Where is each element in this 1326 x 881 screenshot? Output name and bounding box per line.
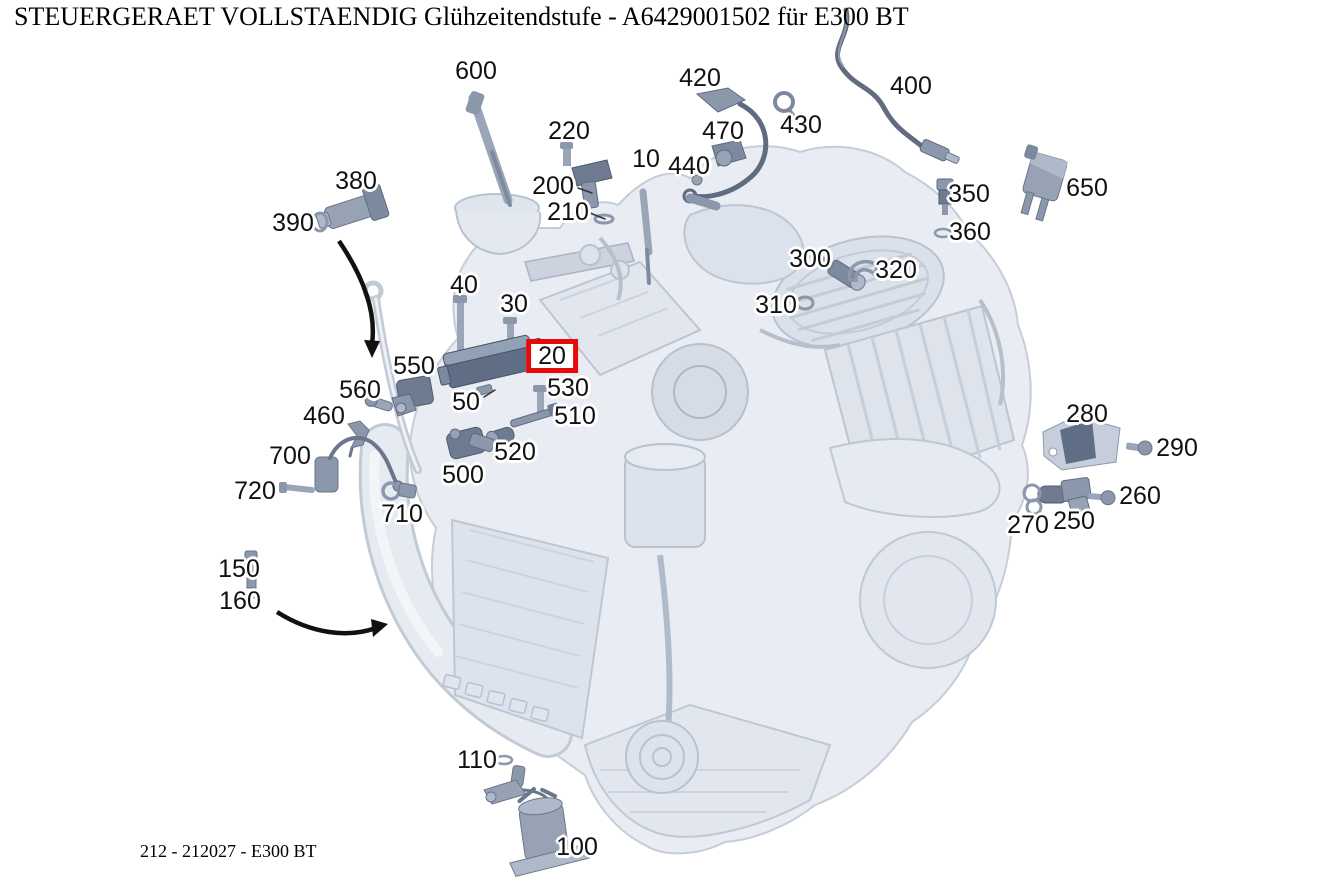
callout-20-highlighted[interactable]: 20 xyxy=(526,339,578,373)
callout-430[interactable]: 430 xyxy=(780,112,822,138)
callout-460[interactable]: 460 xyxy=(303,403,345,429)
callout-110[interactable]: 110 xyxy=(457,747,497,773)
callout-290[interactable]: 290 xyxy=(1156,435,1198,461)
callout-150[interactable]: 150 xyxy=(218,556,260,582)
callout-100[interactable]: 100 xyxy=(556,834,598,860)
callout-280[interactable]: 280 xyxy=(1066,401,1108,427)
page-title: STEUERGERAET VOLLSTAENDIG Glühzeitendstu… xyxy=(14,2,909,32)
callout-220[interactable]: 220 xyxy=(548,118,590,144)
callout-250[interactable]: 250 xyxy=(1053,508,1095,534)
callout-320[interactable]: 320 xyxy=(875,257,917,283)
callout-530[interactable]: 530 xyxy=(547,375,589,401)
callout-210[interactable]: 210 xyxy=(547,199,589,225)
callout-200[interactable]: 200 xyxy=(532,173,574,199)
callout-720[interactable]: 720 xyxy=(234,478,276,504)
callout-350[interactable]: 350 xyxy=(948,181,990,207)
callout-160[interactable]: 160 xyxy=(219,588,261,614)
callout-50[interactable]: 50 xyxy=(452,389,480,415)
callout-30[interactable]: 30 xyxy=(500,291,528,317)
callout-600[interactable]: 600 xyxy=(455,58,497,84)
callout-260[interactable]: 260 xyxy=(1119,483,1161,509)
callout-520[interactable]: 520 xyxy=(494,439,536,465)
callout-500[interactable]: 500 xyxy=(442,462,484,488)
callout-440[interactable]: 440 xyxy=(668,153,710,179)
callout-10[interactable]: 10 xyxy=(632,146,660,172)
callout-510[interactable]: 510 xyxy=(554,403,596,429)
callout-420[interactable]: 420 xyxy=(679,65,721,91)
callout-550[interactable]: 550 xyxy=(393,353,435,379)
callout-470[interactable]: 470 xyxy=(702,118,744,144)
callout-40[interactable]: 40 xyxy=(450,272,478,298)
callout-400[interactable]: 400 xyxy=(890,73,932,99)
callout-300[interactable]: 300 xyxy=(789,246,831,272)
callout-650[interactable]: 650 xyxy=(1066,175,1108,201)
footer-reference: 212 - 212027 - E300 BT xyxy=(140,841,316,862)
parts-diagram-page: STEUERGERAET VOLLSTAENDIG Glühzeitendstu… xyxy=(0,0,1326,881)
callout-700[interactable]: 700 xyxy=(269,443,311,469)
callout-360[interactable]: 360 xyxy=(949,219,991,245)
callout-710[interactable]: 710 xyxy=(381,501,423,527)
callout-270[interactable]: 270 xyxy=(1007,512,1049,538)
callout-310[interactable]: 310 xyxy=(755,292,797,318)
callout-layer: 6004204002204704301044020021038039035036… xyxy=(0,0,1326,881)
callout-390[interactable]: 390 xyxy=(272,210,314,236)
callout-380[interactable]: 380 xyxy=(335,168,377,194)
callout-560[interactable]: 560 xyxy=(339,377,381,403)
